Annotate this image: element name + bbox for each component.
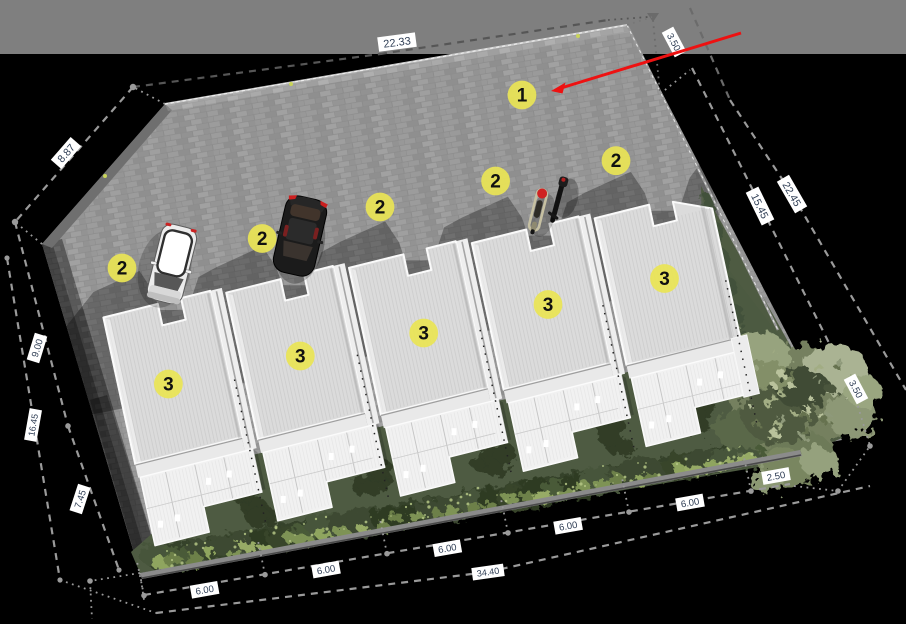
svg-text:2: 2 xyxy=(117,259,128,280)
svg-text:2: 2 xyxy=(611,151,622,172)
svg-text:2: 2 xyxy=(257,229,268,250)
svg-text:3: 3 xyxy=(659,269,670,290)
svg-text:1: 1 xyxy=(517,86,528,107)
svg-text:3: 3 xyxy=(163,375,174,396)
svg-text:3: 3 xyxy=(418,324,429,345)
svg-text:3: 3 xyxy=(543,295,554,316)
svg-text:2: 2 xyxy=(490,172,501,193)
svg-text:3: 3 xyxy=(295,347,306,368)
svg-text:2: 2 xyxy=(375,198,386,219)
